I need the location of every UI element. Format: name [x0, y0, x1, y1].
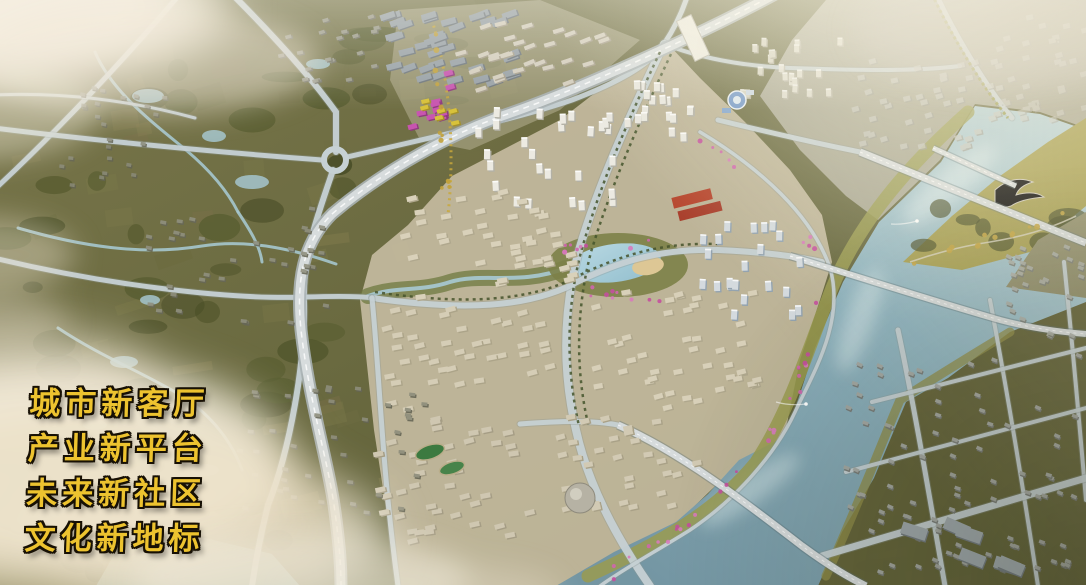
slogan-line-3: 未来新社区: [25, 472, 207, 517]
slogan-overlay: 城市新客厅 产业新平台 未来新社区 文化新地标: [24, 382, 210, 562]
slogan-line-2: 产业新平台: [27, 427, 209, 472]
slogan-line-4: 文化新地标: [24, 517, 206, 562]
masterplan-poster: 城市新客厅 产业新平台 未来新社区 文化新地标: [0, 0, 1086, 585]
slogan-line-1: 城市新客厅: [29, 382, 211, 427]
